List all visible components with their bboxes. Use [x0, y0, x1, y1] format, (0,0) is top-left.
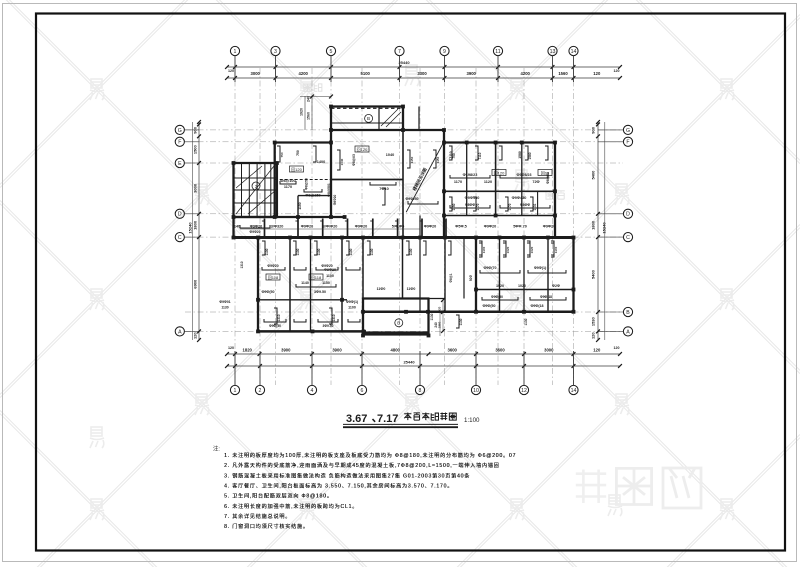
- svg-text:1130: 1130: [221, 306, 228, 310]
- svg-text:1140: 1140: [301, 281, 309, 285]
- svg-text:14: 14: [571, 388, 577, 394]
- svg-text:1580: 1580: [528, 152, 532, 159]
- svg-text:回118: 回118: [268, 275, 279, 280]
- svg-text:1150: 1150: [410, 156, 414, 163]
- svg-text:4200: 4200: [521, 71, 531, 76]
- svg-text:Φ9Φ430: Φ9Φ430: [512, 196, 527, 200]
- svg-text:1400: 1400: [317, 160, 325, 164]
- svg-text:120: 120: [228, 346, 234, 350]
- svg-text:4800: 4800: [391, 348, 401, 353]
- svg-text:25440: 25440: [403, 360, 415, 365]
- svg-text:Φ9Φ(50: Φ9Φ(50: [269, 324, 281, 328]
- svg-text:1100: 1100: [296, 248, 300, 255]
- svg-text:1100: 1100: [348, 306, 356, 310]
- svg-text:15240: 15240: [602, 222, 607, 234]
- svg-text:D: D: [626, 212, 630, 218]
- svg-text:1560: 1560: [558, 71, 568, 76]
- svg-text:Φ9Φ130: Φ9Φ130: [465, 196, 480, 200]
- svg-text:Φ9Φ(70: Φ9Φ(70: [483, 266, 496, 270]
- svg-text:Φ8@100: Φ8@100: [280, 179, 295, 183]
- svg-text:1130: 1130: [459, 318, 463, 325]
- svg-text:Φ8@1: Φ8@1: [449, 273, 453, 282]
- svg-text:1020: 1020: [518, 284, 526, 288]
- svg-text:A: A: [178, 329, 182, 335]
- svg-text:C: C: [626, 235, 630, 241]
- svg-text:1150: 1150: [452, 203, 456, 210]
- svg-text:13: 13: [550, 49, 556, 55]
- svg-text:1100: 1100: [370, 248, 374, 255]
- svg-text:Φ8ΦΦ: Φ8ΦΦ: [465, 203, 475, 207]
- svg-text:Φ9Φ20: Φ9Φ20: [355, 225, 368, 229]
- svg-text:Φ5Φ.5: Φ5Φ.5: [455, 225, 467, 229]
- svg-text:1100: 1100: [554, 246, 558, 253]
- svg-text:1100: 1100: [326, 274, 334, 278]
- svg-text:14: 14: [571, 49, 577, 55]
- svg-text:900: 900: [193, 126, 198, 133]
- svg-text:1530: 1530: [591, 316, 596, 326]
- svg-text:注:: 注:: [213, 445, 220, 453]
- svg-text:F: F: [178, 140, 181, 146]
- svg-text:120: 120: [591, 332, 596, 339]
- svg-text:50Φ: 50Φ: [469, 275, 473, 282]
- svg-text:Φ9Φ20: Φ9Φ20: [424, 225, 437, 229]
- svg-text:120: 120: [614, 69, 620, 73]
- svg-text:6: 6: [361, 388, 364, 394]
- svg-text:3900: 3900: [281, 348, 291, 353]
- svg-text:3Φ9.50: 3Φ9.50: [323, 324, 334, 328]
- svg-text:1800: 1800: [591, 220, 596, 230]
- svg-text:Φ9Φ20: Φ9Φ20: [543, 225, 556, 229]
- svg-text:A: A: [626, 329, 630, 335]
- svg-text:3Φ9.50: 3Φ9.50: [314, 290, 326, 294]
- svg-text:750: 750: [296, 150, 300, 156]
- svg-text:750: 750: [280, 152, 284, 157]
- svg-text:B: B: [367, 116, 370, 121]
- svg-text:7110: 7110: [478, 152, 482, 159]
- svg-text:Φ9Φ8/23: Φ9Φ8/23: [517, 173, 532, 177]
- svg-text:3600: 3600: [495, 348, 505, 353]
- svg-text:750: 750: [452, 153, 456, 159]
- svg-text:6. 未注明长度的加强中筋,未注明的板跨均为CL1。: 6. 未注明长度的加强中筋,未注明的板跨均为CL1。: [224, 503, 358, 510]
- svg-text:5/Φ.Φ5: 5/Φ.Φ5: [392, 225, 405, 229]
- svg-text:3300: 3300: [417, 71, 427, 76]
- svg-text:3.67: 3.67: [346, 413, 367, 425]
- svg-text:1. 未注明的板厚度均为100厚,未注明的板支座及板底受力: 1. 未注明的板厚度均为100厚,未注明的板支座及板底受力筋均为 Φ8@180,…: [224, 452, 516, 459]
- svg-text:2: 2: [259, 388, 262, 394]
- svg-text:C: C: [178, 235, 182, 241]
- svg-text:3/Φ320: 3/Φ320: [271, 225, 284, 229]
- svg-text:3900: 3900: [332, 348, 342, 353]
- svg-text:Φ9Φ20: Φ9Φ20: [267, 264, 278, 268]
- svg-text:Φ198/23: Φ198/23: [463, 173, 478, 177]
- svg-text:3: 3: [274, 49, 277, 55]
- svg-text:5: 5: [330, 49, 333, 55]
- svg-text:Φ9Φ(50: Φ9Φ(50: [491, 295, 503, 299]
- svg-text:1150: 1150: [322, 281, 330, 285]
- svg-text:1040: 1040: [340, 158, 344, 165]
- svg-text:1170: 1170: [454, 180, 462, 184]
- svg-text:1120: 1120: [484, 180, 492, 184]
- svg-text:1860: 1860: [438, 321, 442, 328]
- svg-text:Φ9Φ20: Φ9Φ20: [250, 230, 261, 234]
- svg-text:F: F: [626, 140, 629, 146]
- svg-text:Φ9Φ(50: Φ9Φ(50: [261, 290, 274, 294]
- svg-text:3/Φ/Φ20: 3/Φ/Φ20: [323, 225, 338, 229]
- svg-text:Φ8@50: Φ8@50: [305, 178, 309, 190]
- svg-text:4: 4: [311, 388, 314, 394]
- svg-text:140: 140: [234, 225, 240, 229]
- svg-text:1150: 1150: [298, 202, 302, 209]
- svg-text:1820: 1820: [243, 348, 253, 353]
- svg-text:900: 900: [591, 126, 596, 133]
- svg-text:1020: 1020: [506, 246, 510, 253]
- svg-text:1100: 1100: [317, 248, 321, 255]
- svg-text:120: 120: [593, 71, 601, 76]
- svg-text:1310: 1310: [277, 314, 281, 321]
- svg-text:1131: 1131: [533, 203, 537, 210]
- svg-text:120: 120: [593, 348, 601, 353]
- svg-text:1310: 1310: [332, 314, 336, 321]
- svg-text:11: 11: [495, 49, 500, 55]
- svg-text:1800: 1800: [193, 220, 198, 230]
- svg-text:8: 8: [419, 388, 422, 394]
- svg-text:240: 240: [307, 96, 311, 102]
- svg-text:7.17: 7.17: [377, 413, 398, 425]
- svg-text:1170: 1170: [284, 185, 292, 189]
- svg-text:3000: 3000: [544, 348, 554, 353]
- svg-text:5100: 5100: [361, 71, 371, 76]
- svg-text:10: 10: [473, 388, 479, 394]
- svg-text:15240: 15240: [188, 222, 193, 234]
- svg-text:72Φ: 72Φ: [532, 180, 539, 184]
- svg-text:1150: 1150: [436, 156, 440, 163]
- svg-text:Φ8Φ20: Φ8Φ20: [333, 195, 337, 206]
- svg-text:1560: 1560: [307, 112, 311, 120]
- svg-text:1130: 1130: [430, 313, 434, 320]
- svg-text:8. 门窗洞口均须尺寸核实结施。: 8. 门窗洞口均须尺寸核实结施。: [224, 523, 309, 530]
- svg-text:B: B: [626, 310, 630, 316]
- svg-text:5400: 5400: [591, 170, 596, 180]
- svg-text:5. 卫生间,阳台配筋双层双向 Φ8@180。: 5. 卫生间,阳台配筋双层双向 Φ8@180。: [224, 493, 333, 500]
- svg-text:1580: 1580: [518, 151, 522, 159]
- svg-text:Φ9Φ(1): Φ9Φ(1): [346, 300, 359, 304]
- svg-text:G: G: [178, 128, 182, 134]
- svg-text:1100: 1100: [349, 248, 353, 255]
- svg-text:9: 9: [443, 49, 446, 55]
- svg-text:B: B: [397, 321, 400, 326]
- svg-text:3000: 3000: [251, 71, 261, 76]
- svg-text:1100: 1100: [482, 246, 486, 253]
- svg-text:1040: 1040: [386, 153, 394, 157]
- svg-text:1130: 1130: [524, 318, 528, 325]
- svg-text:1920: 1920: [300, 108, 304, 116]
- svg-text:7. 其余详见结施总说明。: 7. 其余详见结施总说明。: [224, 513, 291, 520]
- svg-text:Φ8@150: Φ8@150: [305, 194, 320, 198]
- svg-text:1100: 1100: [409, 248, 413, 255]
- svg-text:Φ8ΦΦ: Φ8ΦΦ: [520, 203, 530, 207]
- svg-text:Φ2Φ: Φ2Φ: [552, 284, 560, 288]
- svg-text:1310: 1310: [240, 261, 244, 268]
- svg-text:11Φ0: 11Φ0: [377, 287, 386, 291]
- svg-text:1: 1: [234, 388, 237, 394]
- svg-text:Φ9Φ20: Φ9Φ20: [301, 225, 314, 229]
- svg-text:3900: 3900: [467, 71, 477, 76]
- svg-text:D: D: [178, 212, 182, 218]
- svg-text:1: 1: [234, 49, 237, 55]
- svg-text:Φ8@501: Φ8@501: [327, 183, 331, 197]
- svg-text:回118: 回118: [311, 275, 322, 280]
- svg-text:2. 凡外露天构件的受底筋净,迎雨面洒及与早期成45度的混: 2. 凡外露天构件的受底筋净,迎雨面洒及与早期成45度的混凝土板,7Φ8@200…: [224, 462, 500, 469]
- svg-text:Φ8@03: Φ8@03: [352, 154, 356, 166]
- svg-text:1500: 1500: [193, 144, 198, 154]
- svg-text:Φ9Φ20: Φ9Φ20: [321, 264, 332, 268]
- svg-text:3. 钢筋混凝土板采用标准图集做法构造 负筋构造做法采用图: 3. 钢筋混凝土板采用标准图集做法构造 负筋构造做法采用图集27集 G01-20…: [224, 472, 470, 479]
- svg-text:Φ9Φ250: Φ9Φ250: [405, 197, 418, 201]
- svg-text:Φ9Φ(18: Φ9Φ(18: [540, 295, 552, 299]
- svg-text:12: 12: [521, 388, 527, 394]
- svg-text:25440: 25440: [398, 60, 410, 65]
- svg-text:E: E: [178, 161, 182, 167]
- svg-text:Φ9Φ20: Φ9Φ20: [484, 225, 497, 229]
- svg-text:5ΦΦ.70: 5ΦΦ.70: [513, 225, 527, 229]
- svg-text:1:100: 1:100: [464, 417, 480, 424]
- svg-text:6900: 6900: [193, 279, 198, 289]
- svg-text:1020: 1020: [530, 246, 534, 253]
- svg-text:Φ9Φ01: Φ9Φ01: [219, 300, 230, 304]
- svg-text:回120: 回120: [357, 147, 368, 152]
- svg-text:4200: 4200: [299, 71, 309, 76]
- svg-text:3000: 3000: [193, 183, 198, 193]
- svg-text:11Φ0: 11Φ0: [407, 287, 416, 291]
- svg-text:120: 120: [614, 346, 620, 350]
- svg-text:G: G: [626, 128, 630, 134]
- svg-text:3600: 3600: [448, 348, 458, 353]
- svg-text:回120: 回120: [494, 170, 505, 175]
- svg-text:1100: 1100: [265, 248, 269, 255]
- svg-text:1170: 1170: [476, 203, 480, 210]
- svg-text:Φ9Φ(50: Φ9Φ(50: [482, 304, 495, 308]
- svg-text:1170: 1170: [508, 203, 512, 210]
- svg-text:5400: 5400: [591, 269, 596, 279]
- svg-text:Φ9Φ(18: Φ9Φ(18: [530, 304, 543, 308]
- svg-text:回120: 回120: [291, 167, 302, 172]
- svg-text:4. 客厅餐厅、卫生间,阳台板面标高为 3.550、7.1: 4. 客厅餐厅、卫生间,阳台板面标高为 3.550、7.150,其余房间标高为3…: [224, 482, 453, 489]
- svg-text:120: 120: [193, 332, 198, 339]
- svg-text:1920: 1920: [438, 306, 442, 313]
- svg-text:120: 120: [228, 69, 234, 73]
- svg-text:Φ9Φ(1): Φ9Φ(1): [534, 266, 547, 270]
- svg-text:7: 7: [398, 49, 401, 55]
- svg-text:1020: 1020: [496, 284, 504, 288]
